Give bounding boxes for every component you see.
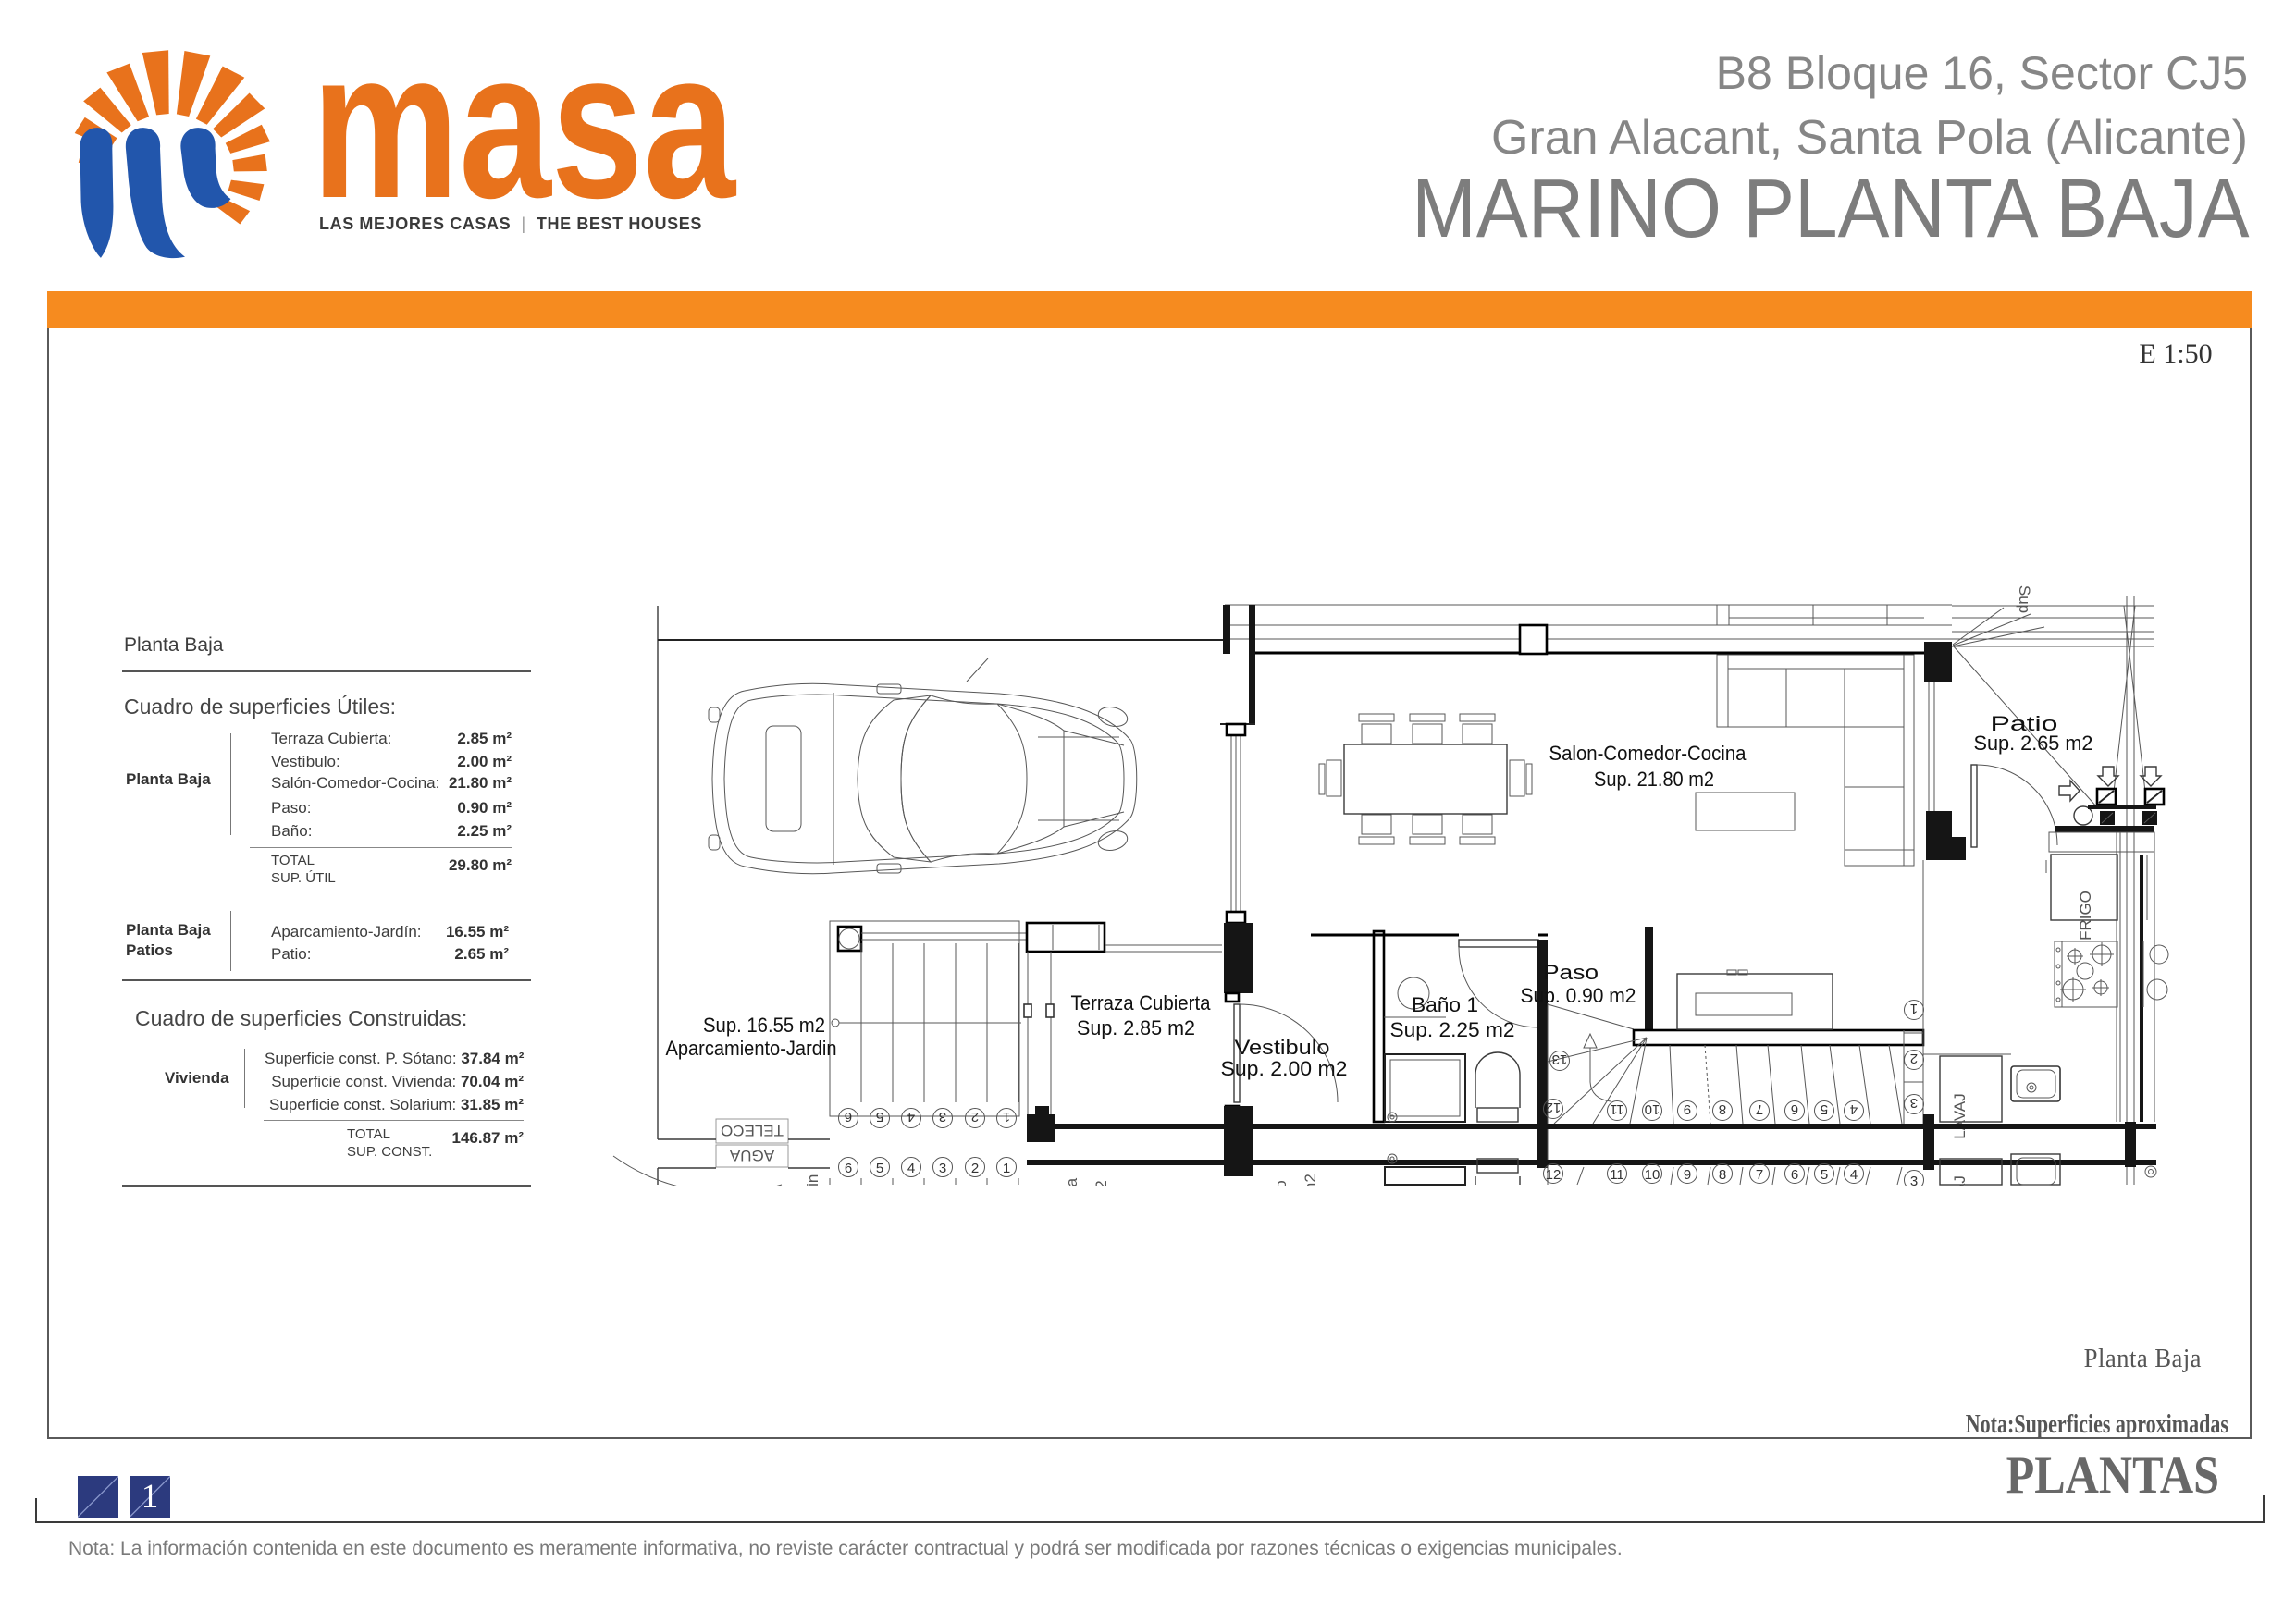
svg-text:9: 9 xyxy=(1684,1101,1691,1117)
svg-text:Sup. 21.80 m2: Sup. 21.80 m2 xyxy=(1594,768,1714,791)
svg-text:Sup. 2.00 m2: Sup. 2.00 m2 xyxy=(1221,1057,1348,1080)
svg-text:Paso: Paso xyxy=(1543,961,1599,984)
svg-text:2: 2 xyxy=(1910,1051,1918,1066)
svg-text:6: 6 xyxy=(845,1109,852,1125)
svg-text:2: 2 xyxy=(971,1161,979,1176)
svg-text:3: 3 xyxy=(1910,1174,1918,1186)
svg-text:4: 4 xyxy=(1850,1167,1858,1183)
svg-text:8: 8 xyxy=(1719,1167,1726,1183)
svg-text:Vestibulo: Vestibulo xyxy=(1235,1036,1330,1059)
svg-text:10: 10 xyxy=(1645,1101,1660,1117)
svg-text:9: 9 xyxy=(1684,1167,1691,1183)
svg-text:Sup. 2.25 m2: Sup. 2.25 m2 xyxy=(1390,1018,1515,1041)
svg-text:o: o xyxy=(1272,1180,1290,1186)
svg-text:TELECO: TELECO xyxy=(721,1122,784,1139)
svg-text:AJ: AJ xyxy=(1951,1175,1969,1186)
svg-text:Sup. 2.85 m2: Sup. 2.85 m2 xyxy=(1077,1016,1195,1039)
svg-text:5: 5 xyxy=(876,1161,883,1176)
svg-text:Sup. 16.55 m2: Sup. 16.55 m2 xyxy=(703,1014,825,1037)
svg-text:11: 11 xyxy=(1610,1167,1624,1183)
svg-text:1: 1 xyxy=(1003,1109,1010,1125)
svg-text:4: 4 xyxy=(907,1161,915,1176)
svg-text:4: 4 xyxy=(1850,1101,1858,1117)
svg-text:m2: m2 xyxy=(1302,1174,1319,1186)
svg-text:7: 7 xyxy=(1756,1167,1763,1183)
svg-text:1: 1 xyxy=(1003,1161,1010,1176)
svg-text:7: 7 xyxy=(1756,1101,1763,1117)
svg-text:Sup. 0.90 m2: Sup. 0.90 m2 xyxy=(1521,984,1636,1007)
svg-text:12: 12 xyxy=(1546,1100,1562,1115)
svg-text:12: 12 xyxy=(1546,1167,1562,1183)
svg-text:3: 3 xyxy=(1910,1095,1918,1111)
svg-text:2: 2 xyxy=(1092,1180,1110,1186)
svg-text:4: 4 xyxy=(907,1109,915,1125)
svg-text:3: 3 xyxy=(939,1161,946,1176)
svg-text:Sup: Sup xyxy=(2016,585,2033,613)
svg-text:Salon-Comedor-Cocina: Salon-Comedor-Cocina xyxy=(1549,742,1747,765)
svg-text:FRIGO: FRIGO xyxy=(2077,891,2094,941)
svg-text:Sup. 2.65 m2: Sup. 2.65 m2 xyxy=(1974,732,2093,755)
svg-text:5: 5 xyxy=(1821,1167,1828,1183)
svg-text:6: 6 xyxy=(1791,1167,1798,1183)
svg-text:LAVAJ: LAVAJ xyxy=(1951,1093,1969,1138)
svg-text:AGUA: AGUA xyxy=(729,1147,774,1164)
svg-text:5: 5 xyxy=(1821,1101,1828,1117)
svg-text:1: 1 xyxy=(1910,1001,1918,1016)
svg-text:6: 6 xyxy=(845,1161,852,1176)
svg-text:Terraza Cubierta: Terraza Cubierta xyxy=(1071,991,1212,1014)
svg-text:13: 13 xyxy=(1552,1051,1568,1067)
svg-text:6: 6 xyxy=(1791,1101,1798,1117)
svg-text:3: 3 xyxy=(939,1109,946,1125)
svg-text:ta: ta xyxy=(1063,1177,1080,1186)
svg-text:8: 8 xyxy=(1719,1101,1726,1117)
svg-text:10: 10 xyxy=(1645,1167,1660,1183)
svg-text:Aparcamiento-Jardin: Aparcamiento-Jardin xyxy=(666,1037,837,1060)
svg-text:2: 2 xyxy=(971,1109,979,1125)
svg-text:5: 5 xyxy=(876,1109,883,1125)
svg-text:Baño 1: Baño 1 xyxy=(1412,993,1478,1016)
svg-text:din: din xyxy=(804,1174,821,1186)
svg-text:11: 11 xyxy=(1610,1101,1624,1117)
